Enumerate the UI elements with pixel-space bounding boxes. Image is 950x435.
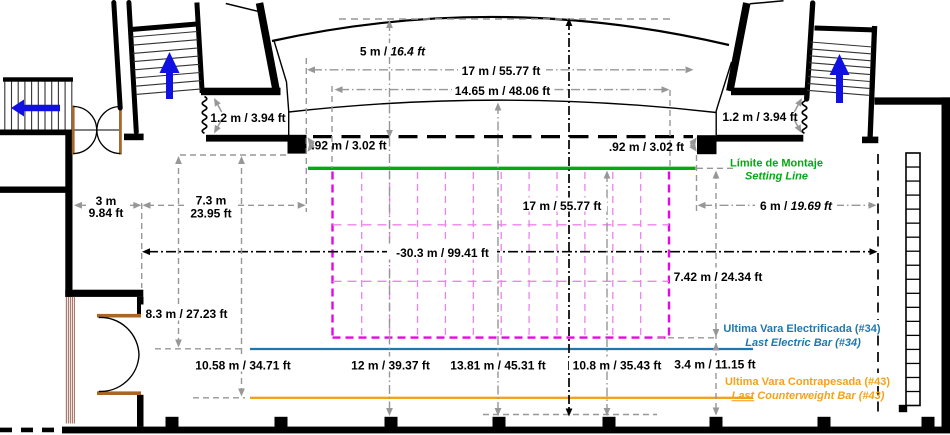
- svg-text:8.3 m / 27.23 ft: 8.3 m / 27.23 ft: [145, 307, 227, 321]
- svg-text:17 m / 55.77 ft: 17 m / 55.77 ft: [523, 199, 602, 213]
- svg-text:1.2 m / 3.94 ft: 1.2 m / 3.94 ft: [722, 110, 797, 124]
- svg-text:Setting Line: Setting Line: [745, 171, 808, 183]
- svg-text:9.84 ft: 9.84 ft: [89, 206, 124, 220]
- svg-text:Ultima Vara Electrificada (#34: Ultima Vara Electrificada (#34): [723, 323, 880, 335]
- svg-text:.92 m / 3.02 ft: .92 m / 3.02 ft: [311, 139, 386, 153]
- svg-text:-30.3 m / 99.41 ft: -30.3 m / 99.41 ft: [396, 246, 489, 260]
- svg-text:14.65 m / 48.06 ft: 14.65 m / 48.06 ft: [455, 84, 550, 98]
- svg-text:23.95 ft: 23.95 ft: [190, 206, 231, 220]
- svg-text:5 m / 16.4 ft: 5 m / 16.4 ft: [360, 44, 426, 58]
- svg-text:.92 m / 3.02 ft: .92 m / 3.02 ft: [609, 140, 684, 154]
- svg-text:Last Counterweight Bar (#43): Last Counterweight Bar (#43): [732, 390, 885, 402]
- svg-text:10.8 m / 35.43 ft: 10.8 m / 35.43 ft: [573, 359, 662, 373]
- svg-text:Last Electric Bar (#34): Last Electric Bar (#34): [745, 337, 861, 349]
- svg-text:12 m / 39.37 ft: 12 m / 39.37 ft: [351, 359, 430, 373]
- svg-text:17 m / 55.77 ft: 17 m / 55.77 ft: [462, 64, 541, 78]
- svg-text:7.42 m / 24.34 ft: 7.42 m / 24.34 ft: [674, 270, 763, 284]
- svg-text:10.58 m / 34.71 ft: 10.58 m / 34.71 ft: [195, 359, 290, 373]
- svg-text:6 m / 19.69 ft: 6 m / 19.69 ft: [760, 199, 833, 213]
- svg-text:7.3 m: 7.3 m: [196, 193, 227, 207]
- svg-text:3.4 m / 11.15 ft: 3.4 m / 11.15 ft: [674, 358, 755, 372]
- svg-text:Límite de Montaje: Límite de Montaje: [730, 157, 823, 169]
- svg-text:13.81 m / 45.31 ft: 13.81 m / 45.31 ft: [450, 359, 545, 373]
- svg-text:Ultima Vara Contrapesada (#43): Ultima Vara Contrapesada (#43): [725, 376, 890, 388]
- svg-text:1.2 m / 3.94 ft: 1.2 m / 3.94 ft: [210, 111, 285, 125]
